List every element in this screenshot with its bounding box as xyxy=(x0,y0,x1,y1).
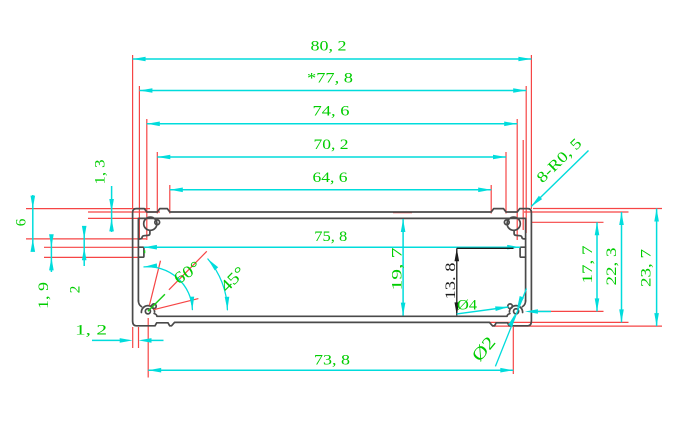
svg-text:80, 2: 80, 2 xyxy=(311,38,347,55)
svg-text:64, 6: 64, 6 xyxy=(313,169,348,186)
svg-text:19, 7: 19, 7 xyxy=(389,247,406,291)
svg-text:Ø4: Ø4 xyxy=(457,297,477,314)
svg-text:70, 2: 70, 2 xyxy=(314,136,349,153)
svg-text:23, 7: 23, 7 xyxy=(638,248,655,287)
svg-text:17, 7: 17, 7 xyxy=(579,245,596,284)
svg-text:13. 8: 13. 8 xyxy=(442,262,459,299)
svg-text:75, 8: 75, 8 xyxy=(314,228,347,245)
svg-text:2: 2 xyxy=(67,286,84,294)
svg-text:1, 9: 1, 9 xyxy=(35,282,52,309)
svg-text:*77, 8: *77, 8 xyxy=(307,70,353,87)
svg-text:1, 2: 1, 2 xyxy=(75,322,107,339)
svg-text:74, 6: 74, 6 xyxy=(313,103,350,120)
svg-text:73, 8: 73, 8 xyxy=(314,351,350,368)
svg-text:1, 3: 1, 3 xyxy=(92,160,109,185)
svg-text:22, 3: 22, 3 xyxy=(603,248,620,286)
svg-text:6: 6 xyxy=(13,218,30,226)
